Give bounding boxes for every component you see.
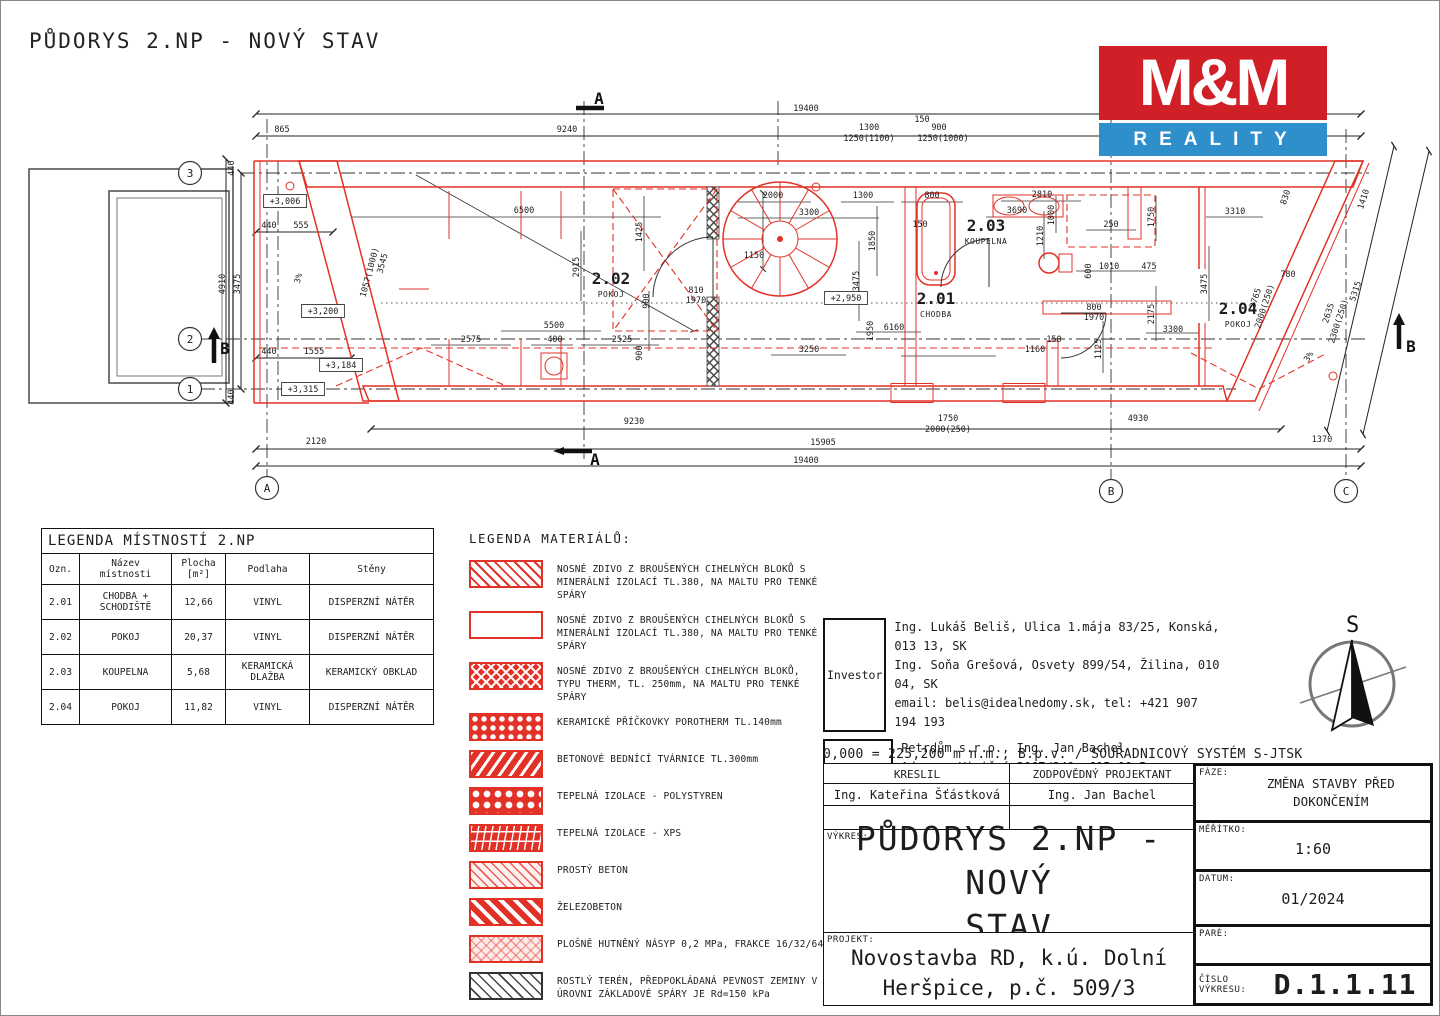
material-swatch-zelezobeton [469,898,543,926]
dimension-label: 2175 [1147,304,1157,324]
dimension-label: 2120 [306,437,326,447]
room-legend-table: LEGENDA MÍSTNOSTÍ 2.NP Ozn.Název místnos… [41,528,434,725]
dimension-label: 2000 [763,191,783,201]
dimension-label: 440 [261,347,276,357]
table-cell: DISPERZNÍ NÁTĚR [310,620,434,655]
dimension-label: 3300 [799,208,819,218]
dimension-label: 150 [912,220,927,230]
dimension-label: 3475 [852,271,862,291]
pare-cell: PARÉ: [1193,924,1433,966]
section-label: A [594,91,604,108]
section-marks [208,108,1405,455]
dimension-label: 1425 [635,222,645,242]
investor-details: Ing. Lukáš Beliš, Ulica 1.mája 83/25, Ko… [894,618,1223,732]
material-swatch-empty [469,611,543,639]
dimension-label: 1750 [938,414,958,424]
pare-value [1196,941,1430,955]
room-number: 2.02 [592,269,631,288]
material-legend-item: NOSNÉ ZDIVO Z BROUŠENÝCH CIHELNÝCH BLOKŮ… [469,611,829,653]
table-cell: CHODBA + SCHODIŠTĚ [80,585,172,620]
material-legend-item: NOSNÉ ZDIVO Z BROUŠENÝCH CIHELNÝCH BLOKŮ… [469,662,829,704]
dimension-label: 1250(1000) [917,134,968,144]
dimension-label: 5315 [1348,280,1364,303]
material-label: TEPELNÁ IZOLACE - XPS [557,824,681,840]
dimension-label: 4910 [218,274,228,294]
section-label: A [590,450,600,469]
dimension-label: 1410 [1356,188,1372,211]
dimension-label: 2525 [612,335,632,345]
logo-mm-mark: M&M [1099,46,1327,120]
dimension-label: 2915 [572,257,582,277]
datum-coordinate-note: 0,000 = 225,200 m n.m., B.p.v. / SOUŘADN… [823,747,1302,762]
dimension-label: 2575 [461,335,481,345]
dimension-label: 1370 [1312,435,1332,445]
dimension-label: 9240 [557,125,577,135]
dimension-label: 3% [1302,350,1316,364]
table-cell: VINYL [226,585,310,620]
meritko-value: 1:60 [1196,837,1430,861]
compass-needle-dark [1352,640,1374,726]
dimension-label: 1555 [304,347,324,357]
faze-label: FÁZE: [1196,766,1232,820]
north-compass: S [1294,604,1414,744]
dimension-label: 19400 [793,456,819,466]
elevation-label: +3,200 [308,307,339,317]
dimension-label: 600 [1084,263,1094,278]
elevation-label: +2,950 [831,294,862,304]
table-cell: 5,68 [172,655,226,690]
dimension-label: 150 [914,115,929,125]
room-number: 2.01 [917,289,956,308]
vykres-value: PŮDORYS 2.NP - NOVÝ STAV [824,844,1194,922]
column-header: Plocha [m²] [172,554,226,585]
grid-bubble-label: C [1343,485,1350,498]
projektant-header-cell: ZODPOVĚDNÝ PROJEKTANT [1009,763,1195,785]
dimension-label: 15905 [810,438,836,448]
column-header: Stěny [310,554,434,585]
cislo-label: ČÍSLO VÝKRESU: [1196,973,1260,997]
material-legend-item: TEPELNÁ IZOLACE - POLYSTYREN [469,787,829,815]
dimension-label: 1000 [1047,205,1057,225]
vykres-cell: VÝKRES: PŮDORYS 2.NP - NOVÝ STAV [823,829,1195,934]
projektant-name-cell: Ing. Jan Bachel [1009,783,1195,807]
dimension-label: 900 [931,123,946,133]
material-swatch-bednici [469,750,543,778]
dimension-label: 1160 [1025,345,1045,355]
page-title: PŮDORYS 2.NP - NOVÝ STAV [29,29,380,53]
dimension-label: 800 [1086,303,1101,313]
datum-label: DATUM: [1196,872,1430,886]
cislo-cell: ČÍSLO VÝKRESU: D.1.1.11 [1193,963,1433,1006]
material-legend-item: ROSTLÝ TERÉN, PŘEDPOKLÁDANÁ PEVNOST ZEMI… [469,972,829,1001]
dimension-label: 1850 [868,231,878,251]
dimension-label: 1010 [1099,262,1119,272]
table-row: 2.02POKOJ20,37VINYLDISPERZNÍ NÁTĚR [42,620,434,655]
faze-value: ZMĚNA STAVBY PŘED DOKONČENÍM [1232,766,1430,820]
cislo-value: D.1.1.11 [1260,968,1430,1001]
dimension-label: 3310 [1225,207,1245,217]
materials-legend: LEGENDA MATERIÁLŮ: NOSNÉ ZDIVO Z BROUŠEN… [469,531,829,1010]
pare-label: PARÉ: [1196,927,1430,941]
datum-cell: DATUM: 01/2024 [1193,869,1433,927]
table-row: 2.04POKOJ11,82VINYLDISPERZNÍ NÁTĚR [42,690,434,725]
dimension-label: 1125 [1094,339,1104,359]
table-cell: KOUPELNA [80,655,172,690]
table-cell: 11,82 [172,690,226,725]
dimension-label: 1750 [1147,207,1157,227]
material-label: NOSNÉ ZDIVO Z BROUŠENÝCH CIHELNÝCH BLOKŮ… [557,662,829,704]
table-cell: DISPERZNÍ NÁTĚR [310,585,434,620]
investor-label: Investor [823,618,886,732]
dimension-label: 3690 [1007,206,1027,216]
material-legend-item: NOSNÉ ZDIVO Z BROUŠENÝCH CIHELNÝCH BLOKŮ… [469,560,829,602]
compass-north-label: S [1346,613,1359,638]
material-swatch-polystyren [469,787,543,815]
dimension-label: 5500 [544,321,564,331]
table-cell: 2.04 [42,690,80,725]
column-header: Podlaha [226,554,310,585]
dimension-label: 865 [274,125,289,135]
material-label: BETONOVÉ BEDNÍCÍ TVÁRNICE TL.300mm [557,750,758,766]
material-swatch-porotherm [469,713,543,741]
room-number: 2.03 [967,216,1006,235]
dimension-label: 3300 [1163,325,1183,335]
meritko-cell: MĚŘÍTKO: 1:60 [1193,820,1433,872]
dimension-label: 1150 [744,251,764,261]
material-legend-item: PROSTÝ BETON [469,861,829,889]
grid-axis-lines [201,101,1369,481]
material-label: ŽELEZOBETON [557,898,622,914]
dimension-label: 440 [227,160,237,175]
room-legend-header: Ozn.Název místnostiPlocha [m²]PodlahaStě… [42,554,434,585]
section-label: B [1406,337,1416,356]
dimension-label: 6500 [514,206,534,216]
material-swatch-xps [469,824,543,852]
dimension-label: 3% [293,272,305,284]
grid-bubble-label: 2 [187,333,194,346]
dimension-label: 1970 [1084,313,1104,323]
material-swatch-nasyp [469,935,543,963]
material-label: NOSNÉ ZDIVO Z BROUŠENÝCH CIHELNÝCH BLOKŮ… [557,560,829,602]
table-cell: POKOJ [80,690,172,725]
grid-bubble-label: 3 [187,167,194,180]
table-cell: 12,66 [172,585,226,620]
dimension-label: 1250(1100) [843,134,894,144]
projekt-value: Novostavba RD, k.ú. Dolní Heršpice, p.č.… [824,947,1194,999]
dimension-label: 250 [1103,220,1118,230]
material-label: PROSTÝ BETON [557,861,628,877]
elevation-label: +3,184 [326,361,357,371]
dimension-label: 1300 [859,123,879,133]
dimension-label: 900 [642,293,652,308]
dimension-label: 900 [635,345,645,360]
door-arcs [653,237,1106,358]
material-label: PLOŠNĚ HUTNĚNÝ NÁSYP 0,2 MPa, FRAKCE 16/… [557,935,823,951]
material-legend-item: BETONOVÉ BEDNÍCÍ TVÁRNICE TL.300mm [469,750,829,778]
table-cell: VINYL [226,690,310,725]
room-legend-title: LEGENDA MÍSTNOSTÍ 2.NP [42,529,434,554]
dimension-label: 3475 [233,274,243,294]
dimension-label: 9230 [624,417,644,427]
material-legend-item: KERAMICKÉ PŘÍČKOVKY POROTHERM TL.140mm [469,713,829,741]
table-cell: 2.01 [42,585,80,620]
room-name: CHODBA [920,310,952,319]
dimension-label: 400 [547,335,562,345]
dimension-label: 2810 [1032,190,1052,200]
material-label: KERAMICKÉ PŘÍČKOVKY POROTHERM TL.140mm [557,713,782,729]
dimension-label: 810 [688,286,703,296]
dimension-label: 1210 [1036,226,1046,246]
dimension-label: 800 [924,191,939,201]
elevation-label: +3,006 [270,197,301,207]
dimension-label: 780 [1280,270,1295,280]
material-label: NOSNÉ ZDIVO Z BROUŠENÝCH CIHELNÝCH BLOKŮ… [557,611,829,653]
table-row: 2.01CHODBA + SCHODIŠTĚ12,66VINYLDISPERZN… [42,585,434,620]
room-name: POKOJ [1225,320,1252,329]
dimension-label: 19400 [793,104,819,114]
section-label: B [220,339,230,358]
dimension-label: 4930 [1128,414,1148,424]
grid-bubble-label: B [1108,485,1115,498]
material-legend-item: TEPELNÁ IZOLACE - XPS [469,824,829,852]
kreslil-name-cell: Ing. Kateřina Šťástková [823,783,1011,807]
table-cell: KERAMICKÁ DLAŽBA [226,655,310,690]
table-cell: 20,37 [172,620,226,655]
dimension-label: 3250 [799,345,819,355]
dimension-label: 3475 [1200,274,1210,294]
material-label: ROSTLÝ TERÉN, PŘEDPOKLÁDANÁ PEVNOST ZEMI… [557,972,829,1001]
investor-row: Investor Ing. Lukáš Beliš, Ulica 1.mája … [823,618,1223,732]
faze-cell: FÁZE: ZMĚNA STAVBY PŘED DOKONČENÍM [1193,763,1433,823]
drawing-sheet: PŮDORYS 2.NP - NOVÝ STAV M&M REALITY [0,0,1440,1016]
meritko-label: MĚŘÍTKO: [1196,823,1430,837]
dimension-label: 150 [1046,335,1061,345]
dimension-label: 1970 [686,296,706,306]
table-cell: DISPERZNÍ NÁTĚR [310,690,434,725]
room-name: KOUPELNA [965,237,1008,246]
materials-legend-title: LEGENDA MATERIÁLŮ: [469,531,829,546]
dimension-label: 475 [1141,262,1156,272]
room-name: POKOJ [598,290,625,299]
table-cell: POKOJ [80,620,172,655]
column-header: Název místnosti [80,554,172,585]
material-legend-item: ŽELEZOBETON [469,898,829,926]
material-label: TEPELNÁ IZOLACE - POLYSTYREN [557,787,723,803]
dimension-label: 555 [293,221,308,231]
dimension-label: 1300 [853,191,873,201]
datum-value: 01/2024 [1196,886,1430,912]
mm-reality-logo: M&M REALITY [1099,46,1327,156]
table-cell: KERAMICKÝ OBKLAD [310,655,434,690]
table-cell: VINYL [226,620,310,655]
room-number: 2.04 [1219,299,1258,318]
dimension-label: 440 [261,221,276,231]
dimension-label: 440 [227,389,237,404]
table-cell: 2.03 [42,655,80,690]
dimension-label: 2000(250) [925,425,971,435]
material-legend-item: PLOŠNĚ HUTNĚNÝ NÁSYP 0,2 MPa, FRAKCE 16/… [469,935,829,963]
kreslil-header-cell: KRESLIL [823,763,1011,785]
material-swatch-teren [469,972,543,1000]
column-header: Ozn. [42,554,80,585]
material-swatch-therm [469,662,543,690]
material-swatch-diag-light [469,560,543,588]
grid-bubble-label: 1 [187,383,194,396]
dimension-label: 830 [1279,189,1293,207]
grid-bubble-label: A [264,482,271,495]
table-row: 2.03KOUPELNA5,68KERAMICKÁ DLAŽBAKERAMICK… [42,655,434,690]
material-swatch-beton [469,861,543,889]
compass-needle-light [1332,640,1352,730]
logo-reality-bar: REALITY [1099,123,1327,156]
projekt-cell: PROJEKT: Novostavba RD, k.ú. Dolní Heršp… [823,932,1195,1006]
table-cell: 2.02 [42,620,80,655]
neighbor-building [29,169,233,403]
dimension-lines [226,114,1429,466]
dimension-label: 6160 [884,323,904,333]
elevation-label: +3,315 [288,385,319,395]
dimension-label: 1950 [866,321,876,341]
